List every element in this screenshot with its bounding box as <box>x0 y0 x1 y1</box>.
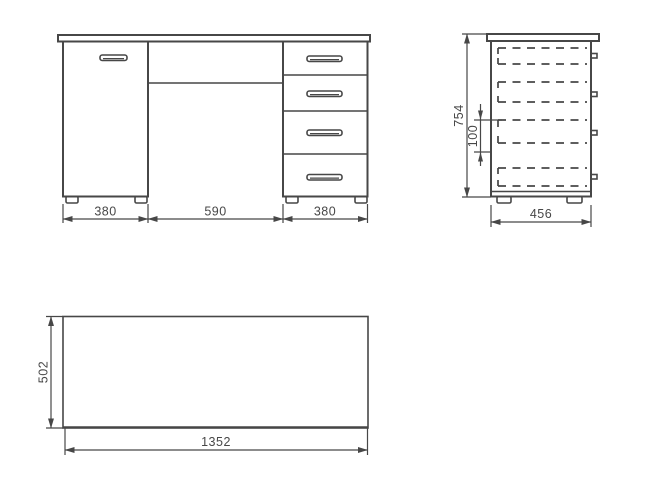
door-handle <box>100 55 127 61</box>
top-depth-dimension: 502 <box>36 317 63 429</box>
dim-label-590: 590 <box>204 205 226 219</box>
hidden-drawer-1 <box>498 48 587 64</box>
left-cabinet <box>63 42 148 197</box>
side-depth-dimension: 456 <box>491 205 591 227</box>
dim-label-100: 100 <box>466 125 480 147</box>
top-view: 502 1352 <box>36 317 368 456</box>
hidden-drawer-4 <box>498 168 587 186</box>
top-width-dimension: 1352 <box>65 428 368 455</box>
drawer-pitch-dimension: 100 <box>466 104 502 166</box>
hidden-drawer-2 <box>498 82 587 102</box>
dim-label-502: 502 <box>36 361 50 383</box>
drawer-handle-4 <box>307 175 342 181</box>
dim-label-380-left: 380 <box>94 205 116 219</box>
drawer-unit <box>283 42 368 197</box>
front-dimensions: 380 590 380 <box>63 204 368 223</box>
side-view: 754 100 456 <box>452 34 599 227</box>
side-height-dimension: 754 <box>452 34 491 197</box>
dim-label-754: 754 <box>452 104 466 126</box>
drawer-handle-2 <box>307 91 342 97</box>
dim-label-380-right: 380 <box>314 205 336 219</box>
drawer-handle-3 <box>307 130 342 136</box>
drawer-handle-1 <box>307 56 342 62</box>
dim-label-456: 456 <box>530 207 552 221</box>
desktop-outline <box>63 317 368 429</box>
desk-technical-drawing: 380 590 380 <box>0 0 650 488</box>
front-view: 380 590 380 <box>58 35 370 223</box>
hidden-drawer-3 <box>498 120 587 143</box>
desk-top-side <box>487 34 599 41</box>
dim-label-1352: 1352 <box>201 435 231 449</box>
